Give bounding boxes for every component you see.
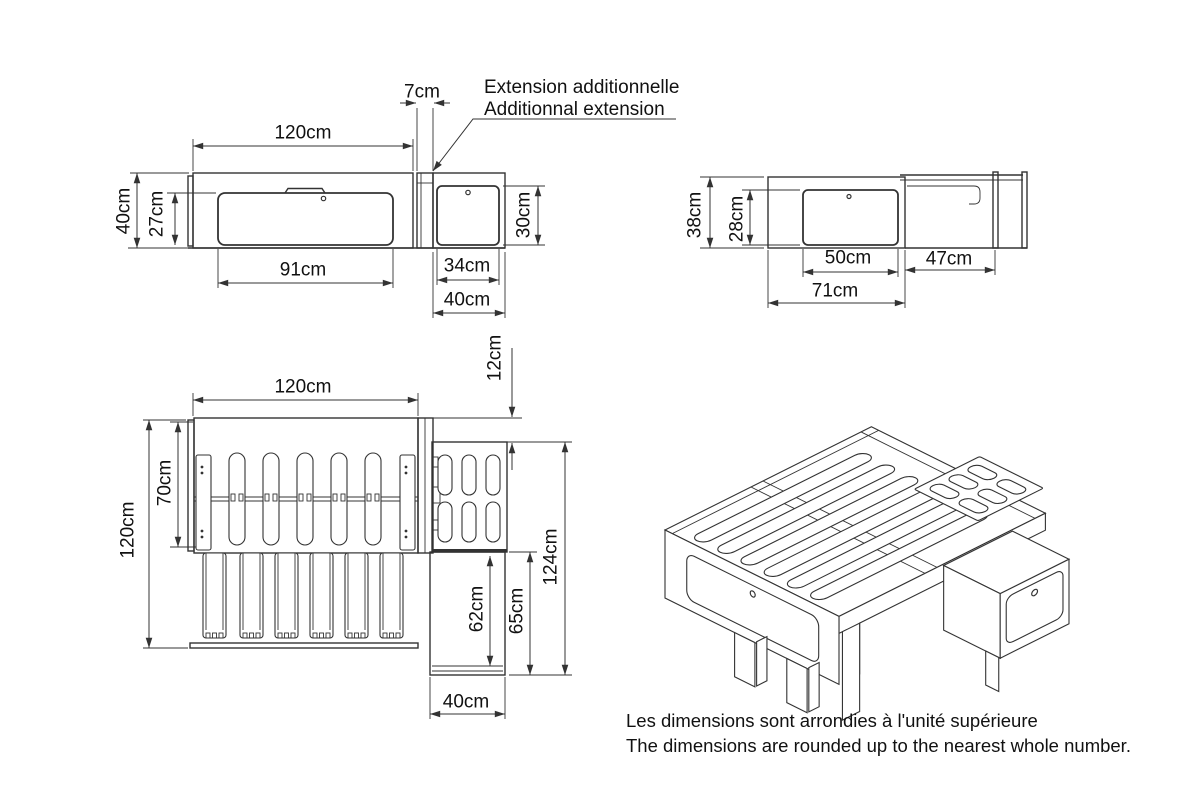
lower-slats (203, 553, 403, 638)
dim-top-box-inner-depth: 62cm (468, 586, 487, 632)
front-view-linework (128, 103, 676, 318)
dim-front-extension-width: 7cm (404, 83, 440, 102)
dim-top-overall-width: 120cm (274, 378, 331, 397)
dim-front-box-panel-width: 34cm (444, 257, 490, 276)
dim-front-box-panel-height: 30cm (515, 192, 534, 238)
footer-note-en: The dimensions are rounded up to the nea… (626, 734, 1131, 759)
dim-side-extension-length: 47cm (926, 250, 972, 269)
dim-top-box-outer-depth: 65cm (508, 588, 527, 634)
side-view-linework (700, 172, 1027, 308)
extension-callout: Extension additionnelle Additionnal exte… (484, 77, 679, 121)
drawing-sheet: 120cm 7cm 40cm 27cm 91cm 34cm 30cm 40cm … (0, 0, 1200, 800)
dim-front-panel-width: 91cm (280, 261, 326, 280)
dim-side-overall-height: 38cm (686, 192, 705, 238)
dim-side-panel-width: 50cm (825, 249, 871, 268)
isometric-view-linework (665, 427, 1069, 729)
dim-front-panel-height: 27cm (148, 191, 167, 237)
dim-top-box-width: 40cm (443, 693, 489, 712)
extension-callout-fr: Extension additionnelle (484, 77, 679, 99)
dim-side-panel-height: 28cm (728, 196, 747, 242)
extension-panel-slots (438, 455, 500, 542)
dim-front-box-width: 40cm (444, 291, 490, 310)
dim-side-base-length: 71cm (812, 282, 858, 301)
upper-slats (229, 453, 381, 545)
dim-top-slat-section: 70cm (156, 460, 175, 506)
dim-top-total-depth: 124cm (542, 528, 561, 585)
front-view-dimensions (128, 103, 676, 318)
dim-front-overall-height: 40cm (115, 188, 134, 234)
footer-note-fr: Les dimensions sont arrondies à l'unité … (626, 709, 1131, 734)
dim-top-overall-depth: 120cm (119, 501, 138, 558)
footer-note: Les dimensions sont arrondies à l'unité … (626, 709, 1131, 758)
dim-front-overall-width: 120cm (274, 124, 331, 143)
dim-top-offset: 12cm (486, 335, 505, 381)
extension-callout-en: Additionnal extension (484, 99, 679, 121)
top-view-linework (143, 348, 572, 719)
